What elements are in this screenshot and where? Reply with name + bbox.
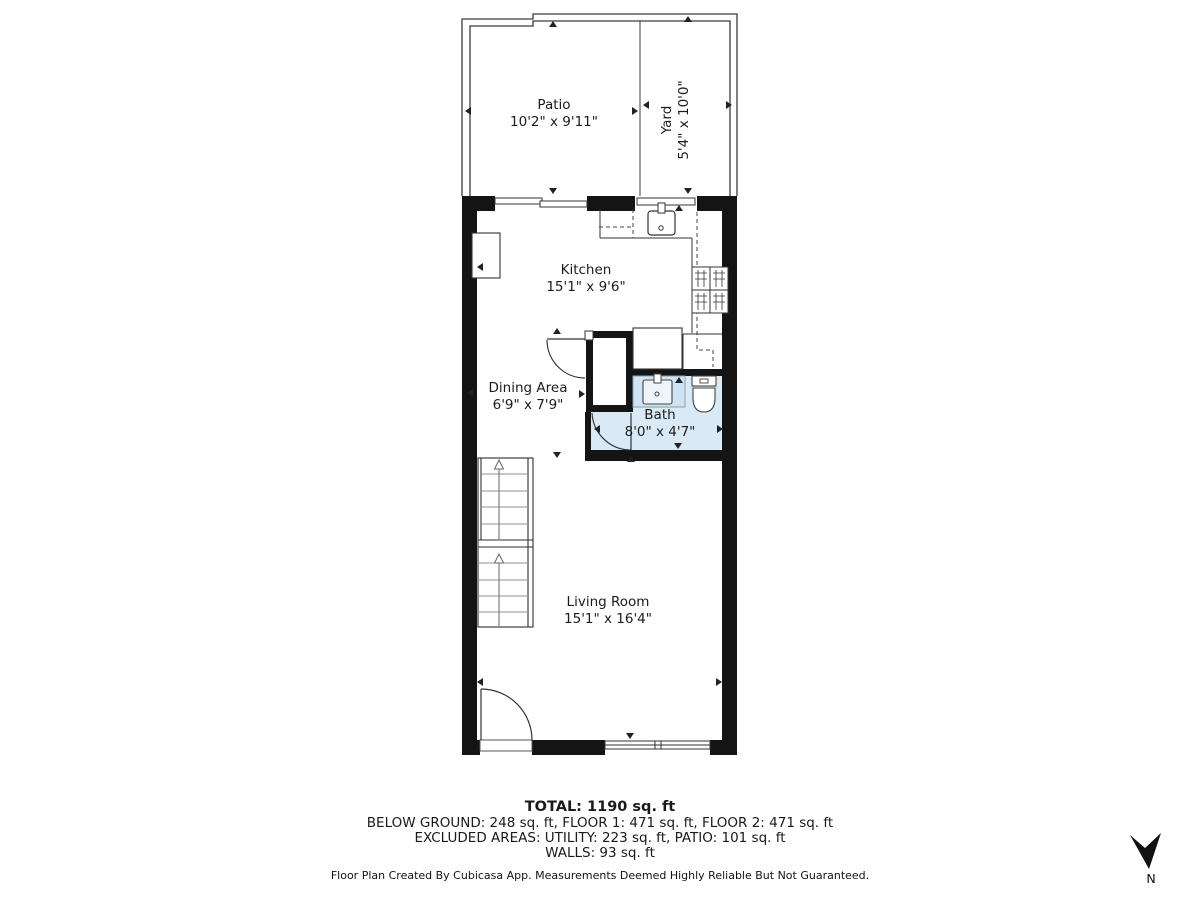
toilet bbox=[692, 376, 716, 412]
yard-dims: 5'4" x 10'0" bbox=[676, 80, 693, 159]
refrigerator bbox=[633, 328, 682, 369]
patio-sliding-door bbox=[495, 198, 587, 207]
kitchen-name: Kitchen bbox=[546, 262, 625, 279]
stair-direction-arrows bbox=[495, 460, 504, 626]
floorplan-page: Patio 10'2" x 9'11" Yard 5'4" x 10'0" Ki… bbox=[0, 0, 1200, 900]
entry-door-arc bbox=[481, 689, 532, 740]
living-room-name: Living Room bbox=[564, 594, 652, 611]
dining-door-jamb bbox=[585, 331, 593, 340]
walls-area-text: WALLS: 93 sq. ft bbox=[0, 846, 1200, 860]
living-room-window bbox=[605, 741, 710, 749]
summary-footer: TOTAL: 1190 sq. ft BELOW GROUND: 248 sq.… bbox=[0, 800, 1200, 882]
disclaimer-text: Floor Plan Created By Cubicasa App. Meas… bbox=[0, 869, 1200, 882]
bath-dims: 8'0" x 4'7" bbox=[625, 424, 696, 441]
kitchen-left-appliance bbox=[472, 233, 500, 278]
living-room-label: Living Room 15'1" x 16'4" bbox=[564, 594, 652, 628]
patio-name: Patio bbox=[510, 97, 598, 114]
living-room-dims: 15'1" x 16'4" bbox=[564, 611, 652, 628]
yard-label: Yard 5'4" x 10'0" bbox=[659, 80, 693, 159]
patio-label: Patio 10'2" x 9'11" bbox=[510, 97, 598, 131]
dining-area-name: Dining Area bbox=[489, 380, 568, 397]
kitchen-dims: 15'1" x 9'6" bbox=[546, 279, 625, 296]
dining-door-arc bbox=[547, 340, 585, 378]
bath-bottom-wall bbox=[585, 450, 737, 461]
closet-interior bbox=[593, 338, 626, 405]
total-area-text: TOTAL: 1190 sq. ft bbox=[0, 800, 1200, 815]
bath-top-wall bbox=[633, 369, 737, 376]
floorplan-drawing bbox=[0, 0, 1200, 900]
entry-threshold bbox=[480, 740, 532, 751]
bath-faucet bbox=[654, 374, 661, 383]
yard-door bbox=[637, 198, 695, 205]
patio-dims: 10'2" x 9'11" bbox=[510, 114, 598, 131]
patio-yard-outline bbox=[462, 14, 737, 196]
bath-left-wall bbox=[585, 412, 591, 450]
entry-door bbox=[480, 689, 532, 751]
kitchen-sink bbox=[648, 203, 675, 235]
north-label: N bbox=[1146, 871, 1155, 886]
yard-name: Yard bbox=[659, 80, 676, 159]
bath-label: Bath 8'0" x 4'7" bbox=[625, 407, 696, 441]
bath-vanity bbox=[633, 374, 685, 407]
stairs bbox=[478, 458, 533, 627]
dining-area-label: Dining Area 6'9" x 7'9" bbox=[489, 380, 568, 414]
stove bbox=[692, 267, 728, 313]
dining-door bbox=[547, 339, 585, 378]
bath-name: Bath bbox=[625, 407, 696, 424]
excluded-area-text: EXCLUDED AREAS: UTILITY: 223 sq. ft, PAT… bbox=[0, 831, 1200, 845]
dining-area-dims: 6'9" x 7'9" bbox=[489, 397, 568, 414]
floors-area-text: BELOW GROUND: 248 sq. ft, FLOOR 1: 471 s… bbox=[0, 816, 1200, 830]
dishwasher bbox=[599, 209, 633, 238]
kitchen-label: Kitchen 15'1" x 9'6" bbox=[546, 262, 625, 296]
